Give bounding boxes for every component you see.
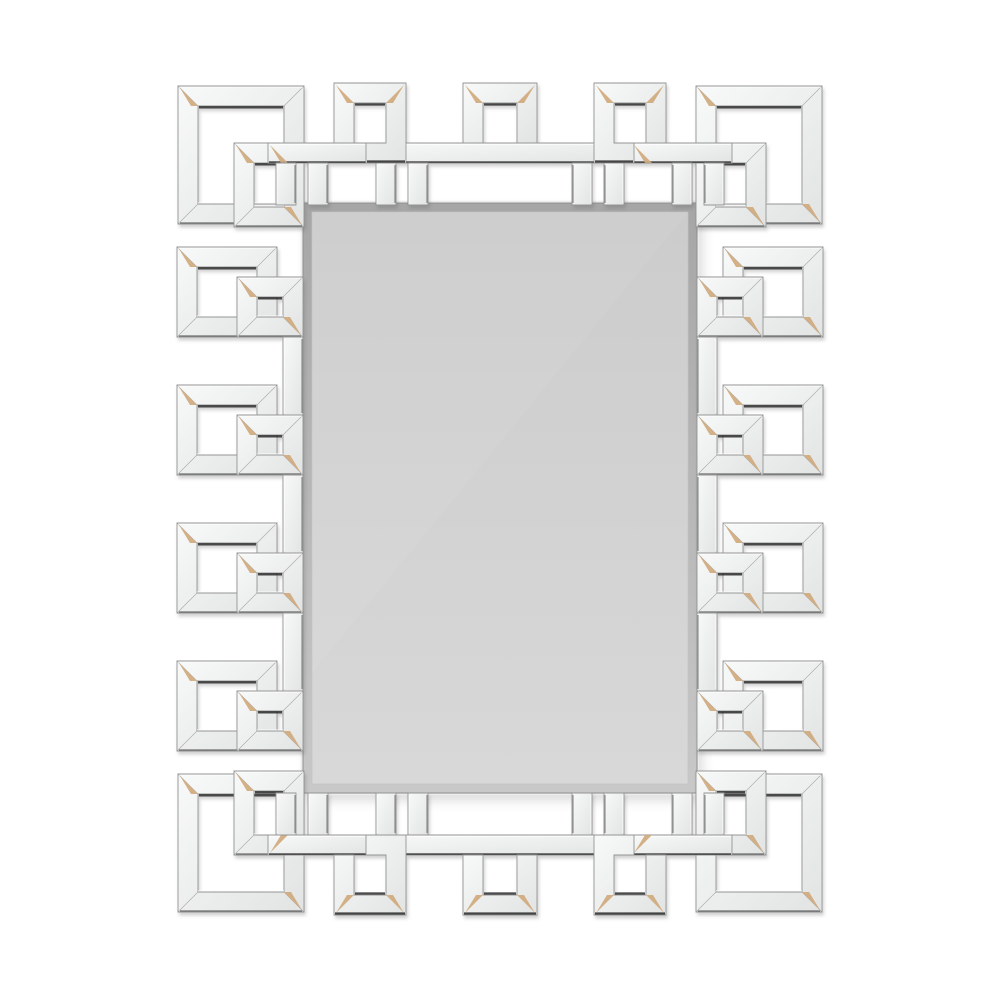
mirror-glass (302, 202, 703, 801)
product-photo (0, 0, 1000, 1000)
greek-key-wall-mirror (0, 0, 1000, 1000)
